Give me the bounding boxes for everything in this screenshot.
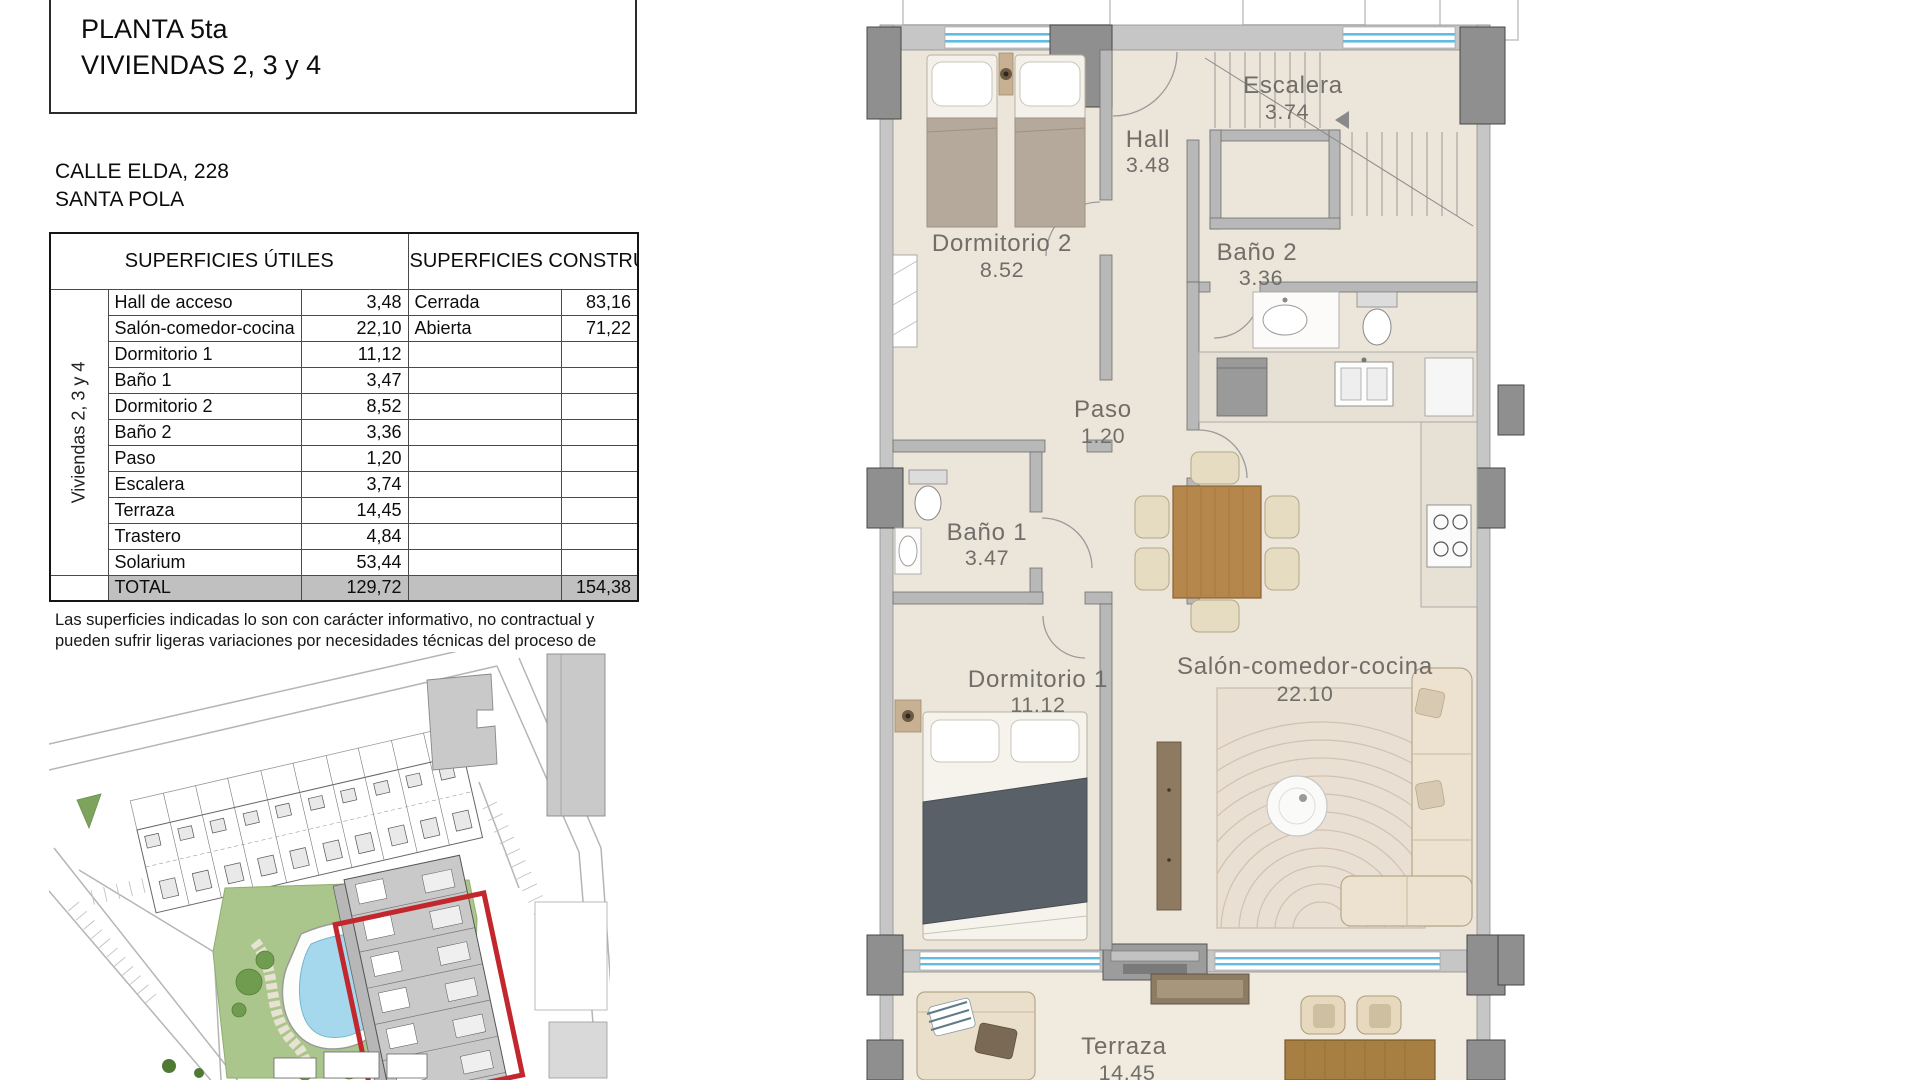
table-header-row: SUPERFICIES ÚTILES SUPERFICIES CONSTRUID… bbox=[50, 233, 638, 289]
row-name: Solarium bbox=[108, 549, 301, 575]
row-name: Dormitorio 2 bbox=[108, 393, 301, 419]
row-value: 53,44 bbox=[301, 549, 408, 575]
row-cvalue: 71,22 bbox=[561, 315, 638, 341]
row-cvalue bbox=[561, 523, 638, 549]
row-cname bbox=[408, 471, 561, 497]
table-row: Dormitorio 111,12 bbox=[50, 341, 638, 367]
row-cname bbox=[408, 367, 561, 393]
row-value: 1,20 bbox=[301, 445, 408, 471]
row-value: 8,52 bbox=[301, 393, 408, 419]
row-name: Terraza bbox=[108, 497, 301, 523]
plan-sheet: PLANTA 5ta VIVIENDAS 2, 3 y 4 CALLE ELDA… bbox=[0, 0, 1920, 1080]
row-cvalue: 83,16 bbox=[561, 289, 638, 315]
floor-plan: Dormitorio 2 8.52 Hall 3.48 Escalera 3.7… bbox=[865, 0, 1530, 1080]
group-label: Viviendas 2, 3 y 4 bbox=[69, 361, 90, 503]
row-cname bbox=[408, 341, 561, 367]
address-line1: CALLE ELDA, 228 bbox=[55, 158, 229, 186]
room-area-bano1: 3.47 bbox=[965, 546, 1009, 570]
table-total-row: TOTAL 129,72 154,38 bbox=[50, 575, 638, 601]
table-row: Dormitorio 28,52 bbox=[50, 393, 638, 419]
room-label-dormitorio2: Dormitorio 2 bbox=[932, 230, 1072, 257]
room-label-terraza: Terraza bbox=[1081, 1033, 1167, 1060]
row-cname bbox=[408, 497, 561, 523]
bath2-fixtures bbox=[1253, 292, 1397, 348]
row-value: 3,48 bbox=[301, 289, 408, 315]
row-cname bbox=[408, 523, 561, 549]
room-area-paso: 1.20 bbox=[1081, 424, 1125, 448]
table-row: Salón-comedor-cocina22,10Abierta71,22 bbox=[50, 315, 638, 341]
row-name: Hall de acceso bbox=[108, 289, 301, 315]
address: CALLE ELDA, 228 SANTA POLA bbox=[55, 158, 229, 213]
row-value: 3,36 bbox=[301, 419, 408, 445]
row-cname bbox=[408, 393, 561, 419]
table-row: Trastero4,84 bbox=[50, 523, 638, 549]
plan-title-line1: PLANTA 5ta bbox=[81, 12, 635, 48]
table-row: Terraza14,45 bbox=[50, 497, 638, 523]
dorm1-bed bbox=[895, 700, 1087, 940]
row-cvalue bbox=[561, 445, 638, 471]
row-value: 3,47 bbox=[301, 367, 408, 393]
room-area-bano2: 3.36 bbox=[1239, 266, 1283, 290]
room-area-terraza: 14.45 bbox=[1099, 1061, 1156, 1080]
row-cvalue bbox=[561, 419, 638, 445]
room-area-escalera: 3.74 bbox=[1265, 100, 1309, 124]
row-name: Escalera bbox=[108, 471, 301, 497]
group-label-cell: Viviendas 2, 3 y 4 bbox=[50, 289, 108, 575]
table-row: Solarium53,44 bbox=[50, 549, 638, 575]
row-name: Baño 1 bbox=[108, 367, 301, 393]
row-cname: Abierta bbox=[408, 315, 561, 341]
room-label-salon: Salón-comedor-cocina bbox=[1177, 653, 1433, 680]
row-cname bbox=[408, 549, 561, 575]
table-row: Paso1,20 bbox=[50, 445, 638, 471]
room-label-hall: Hall bbox=[1126, 126, 1171, 153]
row-value: 22,10 bbox=[301, 315, 408, 341]
table-row: Escalera3,74 bbox=[50, 471, 638, 497]
row-name: Salón-comedor-cocina bbox=[108, 315, 301, 341]
room-label-bano1: Baño 1 bbox=[947, 519, 1028, 546]
row-cvalue bbox=[561, 393, 638, 419]
row-cvalue bbox=[561, 341, 638, 367]
row-cvalue bbox=[561, 549, 638, 575]
room-label-escalera: Escalera bbox=[1243, 72, 1343, 99]
row-value: 14,45 bbox=[301, 497, 408, 523]
row-value: 11,12 bbox=[301, 341, 408, 367]
row-cvalue bbox=[561, 367, 638, 393]
room-area-hall: 3.48 bbox=[1126, 153, 1170, 177]
row-name: Dormitorio 1 bbox=[108, 341, 301, 367]
row-name: Trastero bbox=[108, 523, 301, 549]
address-line2: SANTA POLA bbox=[55, 186, 229, 214]
row-cvalue bbox=[561, 497, 638, 523]
surfaces-table: SUPERFICIES ÚTILES SUPERFICIES CONSTRUID… bbox=[49, 232, 639, 602]
table-row: Baño 13,47 bbox=[50, 367, 638, 393]
row-cname bbox=[408, 419, 561, 445]
site-plan bbox=[49, 652, 610, 1080]
total-label: TOTAL bbox=[108, 575, 301, 601]
title-box: PLANTA 5ta VIVIENDAS 2, 3 y 4 bbox=[49, 0, 637, 114]
header-utiles: SUPERFICIES ÚTILES bbox=[50, 233, 408, 289]
total-value: 129,72 bbox=[301, 575, 408, 601]
room-label-paso: Paso bbox=[1074, 396, 1132, 423]
table-row: Baño 23,36 bbox=[50, 419, 638, 445]
room-label-dormitorio1: Dormitorio 1 bbox=[968, 666, 1108, 693]
row-value: 4,84 bbox=[301, 523, 408, 549]
room-area-salon: 22.10 bbox=[1277, 682, 1334, 706]
room-label-bano2: Baño 2 bbox=[1217, 239, 1298, 266]
total-cvalue: 154,38 bbox=[561, 575, 638, 601]
table-row: Viviendas 2, 3 y 4 Hall de acceso 3,48 C… bbox=[50, 289, 638, 315]
room-area-dormitorio1: 11.12 bbox=[1010, 693, 1065, 717]
row-cname: Cerrada bbox=[408, 289, 561, 315]
total-spacer bbox=[50, 575, 108, 601]
row-value: 3,74 bbox=[301, 471, 408, 497]
row-name: Paso bbox=[108, 445, 301, 471]
room-area-dormitorio2: 8.52 bbox=[980, 258, 1024, 282]
row-name: Baño 2 bbox=[108, 419, 301, 445]
total-empty bbox=[408, 575, 561, 601]
row-cname bbox=[408, 445, 561, 471]
header-construidas: SUPERFICIES CONSTRUIDAS bbox=[408, 233, 638, 289]
row-cvalue bbox=[561, 471, 638, 497]
plan-title-line2: VIVIENDAS 2, 3 y 4 bbox=[81, 48, 635, 84]
